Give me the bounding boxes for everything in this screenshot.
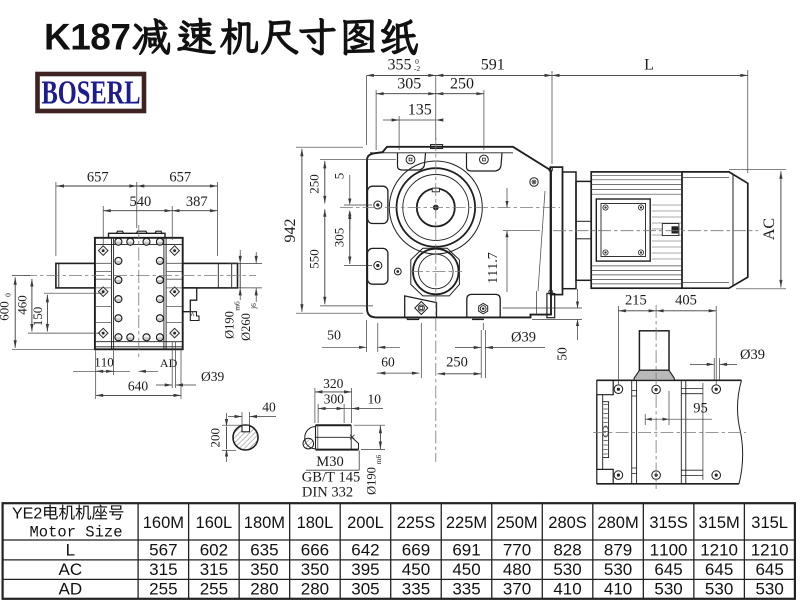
svg-text:600: 600 <box>0 301 12 321</box>
svg-text:60: 60 <box>381 355 395 370</box>
svg-text:879: 879 <box>604 541 632 560</box>
svg-text:Ø39: Ø39 <box>511 330 536 346</box>
svg-text:335: 335 <box>402 580 430 599</box>
svg-text:280: 280 <box>301 580 329 599</box>
svg-text:M30: M30 <box>316 454 343 470</box>
svg-text:1210: 1210 <box>700 541 738 560</box>
svg-text:645: 645 <box>654 560 682 579</box>
svg-text:150: 150 <box>30 307 45 327</box>
svg-text:642: 642 <box>351 541 379 560</box>
svg-text:250: 250 <box>446 355 468 371</box>
svg-text:250: 250 <box>450 75 474 92</box>
svg-text:315M: 315M <box>698 514 739 532</box>
svg-text:770: 770 <box>503 541 531 560</box>
svg-text:135: 135 <box>408 102 432 119</box>
svg-text:387: 387 <box>186 194 208 210</box>
svg-text:AC: AC <box>761 218 778 240</box>
svg-text:200: 200 <box>208 428 223 448</box>
svg-text:L: L <box>66 541 75 560</box>
svg-text:Ø39: Ø39 <box>201 369 224 384</box>
svg-text:m6: m6 <box>374 454 383 464</box>
svg-text:280S: 280S <box>548 514 587 532</box>
svg-text:480: 480 <box>503 560 531 579</box>
svg-text:645: 645 <box>705 560 733 579</box>
svg-text:410: 410 <box>553 580 581 599</box>
svg-text:942: 942 <box>282 219 299 243</box>
svg-text:530: 530 <box>755 580 783 599</box>
svg-text:315: 315 <box>200 560 228 579</box>
svg-text:215: 215 <box>625 293 647 309</box>
svg-text:Ø190: Ø190 <box>223 311 237 339</box>
svg-text:350: 350 <box>250 560 278 579</box>
svg-text:450: 450 <box>452 560 480 579</box>
svg-text:315: 315 <box>149 560 177 579</box>
svg-text:355: 355 <box>388 57 412 74</box>
svg-text:305: 305 <box>397 75 421 92</box>
svg-text:657: 657 <box>169 170 191 186</box>
svg-text:180M: 180M <box>244 514 285 532</box>
svg-text:305: 305 <box>332 228 347 248</box>
svg-text:657: 657 <box>87 170 109 186</box>
svg-text:591: 591 <box>481 57 505 74</box>
svg-text:540: 540 <box>130 194 152 210</box>
svg-text:AD: AD <box>160 356 178 370</box>
svg-text:Ø260: Ø260 <box>239 313 253 341</box>
svg-text:111.7: 111.7 <box>486 252 501 284</box>
svg-text:645: 645 <box>755 560 783 579</box>
svg-text:280M: 280M <box>597 514 638 532</box>
svg-text:AD: AD <box>59 580 83 599</box>
svg-text:250M: 250M <box>496 514 537 532</box>
svg-text:315L: 315L <box>751 514 788 532</box>
svg-text:691: 691 <box>452 541 480 560</box>
svg-text:K187: K187 <box>44 17 130 58</box>
svg-text:-2: -2 <box>414 64 420 73</box>
svg-text:530: 530 <box>553 560 581 579</box>
svg-text:225M: 225M <box>446 514 487 532</box>
svg-text:250: 250 <box>306 174 321 194</box>
svg-text:10: 10 <box>368 392 382 407</box>
svg-text:95: 95 <box>693 401 708 417</box>
svg-text:635: 635 <box>250 541 278 560</box>
svg-text:L: L <box>644 57 654 74</box>
svg-text:255: 255 <box>200 580 228 599</box>
svg-text:1210: 1210 <box>751 541 789 560</box>
svg-text:320: 320 <box>323 376 344 391</box>
svg-text:410: 410 <box>604 580 632 599</box>
svg-text:DIN 332: DIN 332 <box>302 485 353 501</box>
svg-text:110: 110 <box>94 355 114 370</box>
svg-text:Motor Size: Motor Size <box>29 524 122 542</box>
svg-text:1100: 1100 <box>650 541 688 560</box>
svg-text:m6: m6 <box>233 301 242 311</box>
svg-text:160L: 160L <box>196 514 233 532</box>
svg-text:50: 50 <box>555 347 570 361</box>
svg-text:460: 460 <box>14 295 29 315</box>
svg-text:666: 666 <box>301 541 329 560</box>
svg-text:180L: 180L <box>297 514 334 532</box>
svg-text:AC: AC <box>59 560 83 579</box>
svg-text:j6: j6 <box>249 303 258 310</box>
svg-text:50: 50 <box>327 329 341 344</box>
svg-text:GB/T 145: GB/T 145 <box>302 470 360 486</box>
svg-text:200L: 200L <box>347 514 384 532</box>
svg-text:40: 40 <box>262 400 276 415</box>
svg-text:280: 280 <box>250 580 278 599</box>
svg-text:550: 550 <box>306 249 321 269</box>
svg-text:YE2: YE2 <box>12 506 42 523</box>
svg-text:530: 530 <box>604 560 632 579</box>
svg-text:160M: 160M <box>143 514 184 532</box>
svg-text:530: 530 <box>705 580 733 599</box>
svg-text:255: 255 <box>149 580 177 599</box>
svg-text:395: 395 <box>351 560 379 579</box>
svg-text:335: 335 <box>452 580 480 599</box>
svg-text:567: 567 <box>149 541 177 560</box>
svg-text:5: 5 <box>332 173 347 180</box>
svg-text:300: 300 <box>324 392 345 407</box>
svg-text:315S: 315S <box>649 514 688 532</box>
svg-text:0: 0 <box>4 293 13 297</box>
svg-text:370: 370 <box>503 580 531 599</box>
svg-text:602: 602 <box>200 541 228 560</box>
svg-text:Ø39: Ø39 <box>740 347 765 363</box>
svg-text:Ø190: Ø190 <box>365 467 379 495</box>
svg-text:305: 305 <box>351 580 379 599</box>
svg-text:BOSERL: BOSERL <box>42 75 141 112</box>
svg-text:450: 450 <box>402 560 430 579</box>
svg-text:669: 669 <box>402 541 430 560</box>
svg-text:405: 405 <box>675 293 697 309</box>
svg-text:225S: 225S <box>397 514 436 532</box>
svg-text:828: 828 <box>553 541 581 560</box>
svg-text:530: 530 <box>654 580 682 599</box>
svg-text:350: 350 <box>301 560 329 579</box>
svg-text:640: 640 <box>128 379 149 394</box>
